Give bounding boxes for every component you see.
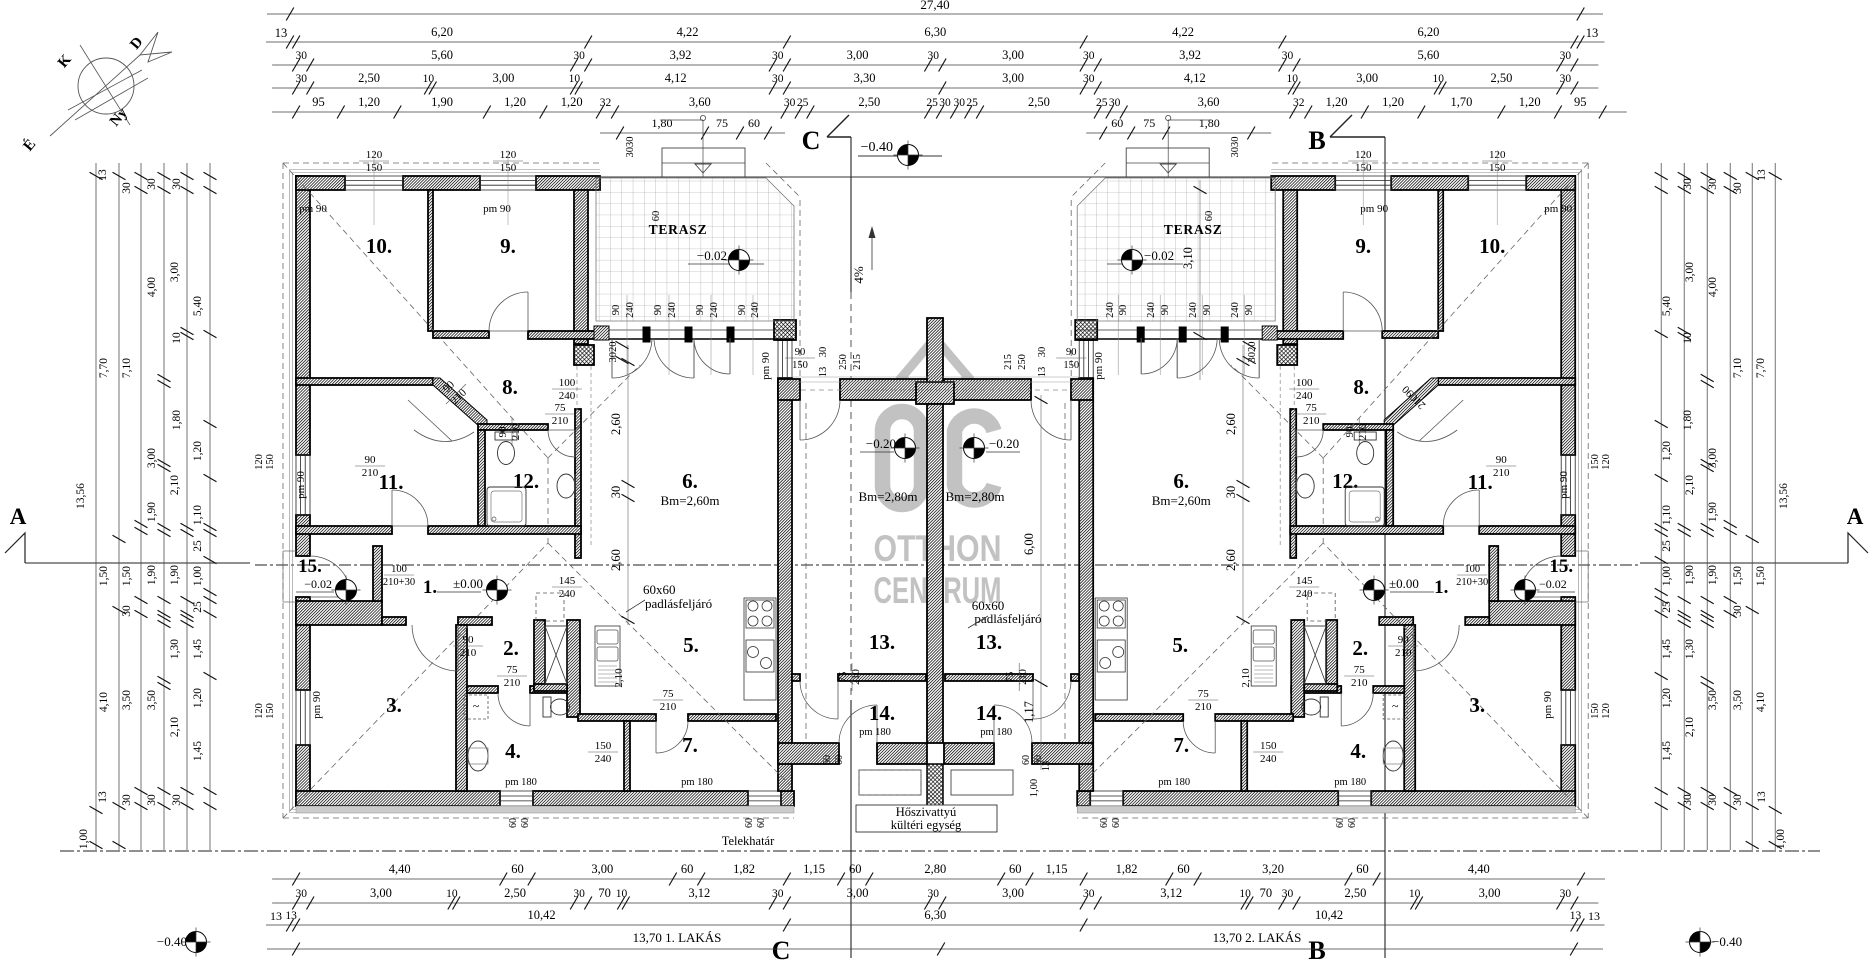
svg-text:Bm=2,60m: Bm=2,60m [1152,493,1211,508]
svg-text:240: 240 [1260,753,1277,765]
svg-text:75: 75 [507,664,519,676]
svg-text:pm 90: pm 90 [483,203,511,215]
svg-text:2,50: 2,50 [1490,71,1512,85]
svg-text:60: 60 [508,818,519,828]
svg-text:70: 70 [598,886,611,900]
svg-text:~: ~ [473,699,480,713]
svg-text:150: 150 [792,360,808,371]
svg-text:240: 240 [750,302,761,318]
svg-text:60: 60 [1347,818,1358,828]
svg-text:1,45: 1,45 [1661,741,1673,761]
svg-text:2.: 2. [1352,636,1368,660]
svg-text:30: 30 [121,182,133,194]
svg-text:1,45: 1,45 [192,741,204,761]
svg-text:14.: 14. [869,701,895,725]
svg-text:1,45: 1,45 [192,639,204,659]
svg-text:25: 25 [192,540,204,552]
svg-text:90: 90 [795,347,806,358]
svg-text:1,90: 1,90 [431,95,453,109]
svg-text:240: 240 [1105,302,1116,318]
svg-text:4,22: 4,22 [677,25,699,39]
svg-text:6.: 6. [682,469,698,493]
svg-text:1,00: 1,00 [192,566,204,586]
svg-text:30: 30 [171,178,183,190]
svg-text:4,40: 4,40 [1468,862,1490,876]
svg-text:30: 30 [1282,50,1294,62]
svg-text:pm 180: pm 180 [681,777,713,788]
svg-text:10: 10 [1432,73,1444,85]
svg-text:3,00: 3,00 [1002,886,1024,900]
svg-text:1,90: 1,90 [1684,565,1696,585]
svg-text:4,12: 4,12 [1184,71,1206,85]
svg-text:−0.20: −0.20 [866,436,896,451]
svg-text:1,20: 1,20 [561,95,583,109]
svg-text:3,00: 3,00 [370,886,392,900]
svg-text:3,50: 3,50 [1732,690,1744,710]
svg-text:1,82: 1,82 [733,862,755,876]
svg-text:25: 25 [1661,540,1673,552]
svg-text:TERASZ: TERASZ [649,222,708,237]
svg-text:C: C [802,126,821,155]
svg-text:Bm=2,80m: Bm=2,80m [946,489,1005,504]
svg-text:pm 180: pm 180 [859,727,891,738]
svg-text:1,80: 1,80 [652,116,673,130]
svg-text:30: 30 [772,888,784,900]
svg-text:13: 13 [285,910,297,922]
svg-text:1,45: 1,45 [1661,639,1673,659]
svg-text:pm 90: pm 90 [1544,203,1572,215]
svg-text:1,90: 1,90 [146,565,158,585]
svg-text:±0.00: ±0.00 [1389,576,1419,591]
svg-text:−0.02: −0.02 [304,577,332,591]
svg-text:210+30: 210+30 [1456,577,1488,588]
svg-text:1,20: 1,20 [1519,95,1541,109]
svg-text:11.: 11. [1468,470,1493,494]
svg-text:1,80: 1,80 [171,410,183,430]
svg-text:30: 30 [146,794,158,806]
svg-text:90: 90 [1496,454,1508,466]
svg-text:10,42: 10,42 [527,908,555,922]
svg-text:1,20: 1,20 [358,95,380,109]
svg-text:1.: 1. [1434,577,1448,598]
svg-text:75: 75 [1005,672,1016,683]
svg-text:10: 10 [1409,888,1421,900]
svg-text:3,00: 3,00 [1356,71,1378,85]
svg-text:120: 120 [1601,454,1612,470]
svg-text:2,10: 2,10 [169,717,181,737]
svg-text:3.: 3. [386,693,402,717]
svg-text:4%: 4% [851,266,866,284]
svg-text:60: 60 [1356,862,1369,876]
svg-text:210: 210 [1195,701,1212,713]
svg-text:25: 25 [1661,601,1673,613]
svg-text:215: 215 [852,354,863,370]
svg-text:60: 60 [1099,818,1110,828]
svg-text:4,12: 4,12 [665,71,687,85]
svg-text:1,20: 1,20 [192,441,204,461]
svg-text:4,00: 4,00 [1707,277,1719,297]
svg-text:2,10: 2,10 [1684,475,1696,495]
svg-text:6.: 6. [1173,469,1189,493]
svg-text:1,00: 1,00 [1661,566,1673,586]
svg-text:3,00: 3,00 [169,262,181,282]
svg-text:30: 30 [1707,794,1719,806]
svg-text:Bm=2,80m: Bm=2,80m [859,489,918,504]
svg-text:210: 210 [851,669,862,685]
svg-text:4,22: 4,22 [1172,25,1194,39]
svg-text:1,17: 1,17 [1022,701,1036,723]
svg-text:240: 240 [1188,302,1199,318]
svg-text:13: 13 [1586,26,1599,40]
svg-text:1,90: 1,90 [146,502,158,522]
svg-text:210: 210 [660,701,677,713]
svg-text:6,20: 6,20 [1417,25,1439,39]
svg-text:30: 30 [818,347,829,358]
svg-text:13: 13 [97,169,109,181]
svg-text:25: 25 [966,97,978,109]
svg-text:pm 180: pm 180 [980,727,1012,738]
svg-text:1,20: 1,20 [504,95,526,109]
svg-text:4,40: 4,40 [389,862,411,876]
svg-text:7,10: 7,10 [1732,358,1744,378]
svg-text:2,10: 2,10 [1240,668,1252,688]
svg-text:pm 90: pm 90 [311,691,323,719]
svg-text:145: 145 [559,575,576,587]
svg-text:75: 75 [1306,402,1318,414]
svg-text:13: 13 [1570,910,1582,922]
svg-text:30: 30 [928,50,940,62]
svg-text:9.: 9. [1355,234,1371,258]
svg-text:13.: 13. [976,630,1002,654]
svg-text:30: 30 [772,73,784,85]
svg-text:30: 30 [1682,178,1694,190]
svg-text:100: 100 [1296,377,1313,389]
svg-text:~: ~ [1392,699,1399,713]
svg-text:5,40: 5,40 [1661,296,1673,316]
svg-text:150: 150 [1590,454,1601,470]
svg-text:pm 90: pm 90 [760,352,772,380]
svg-text:60: 60 [1009,862,1022,876]
svg-text:60: 60 [1111,818,1122,828]
svg-text:30: 30 [928,888,940,900]
svg-text:3,00: 3,00 [1002,48,1024,62]
svg-text:25: 25 [797,97,809,109]
svg-text:13: 13 [275,26,288,40]
svg-text:3,00: 3,00 [1479,886,1501,900]
svg-text:250: 250 [1017,354,1028,370]
svg-text:90: 90 [695,305,706,316]
svg-text:210: 210 [1018,669,1029,685]
svg-text:60: 60 [651,211,662,222]
svg-text:2,60: 2,60 [609,549,623,571]
svg-text:10: 10 [446,888,458,900]
svg-text:60: 60 [834,755,845,765]
svg-text:1,50: 1,50 [1732,566,1744,586]
svg-text:13,56: 13,56 [1778,483,1790,509]
svg-text:1,90: 1,90 [1707,502,1719,522]
svg-text:1.: 1. [423,577,437,598]
svg-text:7,70: 7,70 [1755,358,1767,378]
svg-text:100: 100 [559,377,576,389]
svg-text:210+30: 210+30 [383,577,415,588]
svg-text:25: 25 [1096,97,1108,109]
svg-text:30: 30 [1083,73,1095,85]
svg-text:30: 30 [1682,794,1694,806]
svg-text:30: 30 [573,50,585,62]
svg-text:3,00: 3,00 [591,862,613,876]
svg-text:30: 30 [1083,50,1095,62]
svg-text:30: 30 [1732,794,1744,806]
svg-text:Telekhatár: Telekhatár [722,834,775,848]
svg-text:150: 150 [1590,703,1601,719]
svg-text:210: 210 [552,415,569,427]
svg-text:3,00: 3,00 [1684,262,1696,282]
svg-text:1,90: 1,90 [1707,565,1719,585]
svg-text:1,20: 1,20 [1661,441,1673,461]
svg-text:−0.02: −0.02 [697,248,727,263]
svg-text:1,00: 1,00 [78,829,90,849]
svg-text:10: 10 [171,332,183,344]
svg-text:pm 90: pm 90 [295,471,307,499]
svg-text:60x60: 60x60 [643,582,676,597]
svg-text:3,30: 3,30 [854,71,876,85]
svg-text:kültéri egység: kültéri egység [891,818,962,832]
svg-text:1,30: 1,30 [1684,639,1696,659]
svg-text:13: 13 [1041,761,1052,772]
svg-text:150: 150 [1063,360,1079,371]
svg-text:pm 90: pm 90 [1360,203,1388,215]
svg-text:3030: 3030 [1230,137,1241,158]
svg-text:1,80: 1,80 [1199,116,1220,130]
svg-text:10.: 10. [1479,234,1505,258]
svg-text:3,92: 3,92 [670,48,692,62]
svg-text:1,50: 1,50 [121,566,133,586]
svg-text:30: 30 [573,888,585,900]
svg-text:60: 60 [744,818,755,828]
svg-text:5,40: 5,40 [192,296,204,316]
svg-text:120: 120 [254,454,265,470]
svg-text:A: A [10,504,27,529]
svg-text:B: B [1308,936,1325,960]
svg-text:7,10: 7,10 [121,358,133,378]
svg-text:3,00: 3,00 [1002,71,1024,85]
svg-text:25: 25 [926,97,938,109]
svg-text:3,50: 3,50 [1707,690,1719,710]
svg-text:120: 120 [254,703,265,719]
svg-text:11.: 11. [378,470,403,494]
svg-text:240: 240 [1146,302,1157,318]
svg-text:70: 70 [1260,886,1273,900]
svg-text:150: 150 [265,703,276,719]
svg-text:pm 90: pm 90 [1558,471,1570,499]
svg-text:90: 90 [1066,347,1077,358]
svg-text:−0.20: −0.20 [989,436,1019,451]
svg-text:90: 90 [737,305,748,316]
svg-text:13: 13 [270,909,282,923]
svg-text:1,82: 1,82 [1116,862,1138,876]
svg-text:2,60: 2,60 [1224,413,1238,435]
svg-text:6,30: 6,30 [924,25,946,39]
svg-text:14.: 14. [976,701,1002,725]
svg-text:A: A [1847,504,1864,529]
svg-text:2,60: 2,60 [1224,549,1238,571]
svg-text:4,00: 4,00 [146,277,158,297]
svg-text:10: 10 [1239,888,1251,900]
svg-text:90: 90 [1160,305,1171,316]
svg-text:3,00: 3,00 [146,448,158,468]
svg-text:3.: 3. [1469,693,1485,717]
svg-text:30: 30 [1109,97,1121,109]
svg-text:4.: 4. [505,739,521,763]
svg-text:240: 240 [559,588,576,600]
svg-text:3,92: 3,92 [1179,48,1201,62]
svg-text:1,10: 1,10 [1661,505,1673,525]
svg-text:30: 30 [295,73,307,85]
svg-text:4.: 4. [1350,739,1366,763]
svg-text:13: 13 [97,791,109,803]
svg-text:5.: 5. [683,633,699,657]
svg-text:30: 30 [121,794,133,806]
svg-text:60: 60 [1177,862,1190,876]
svg-text:Bm=2,60m: Bm=2,60m [661,493,720,508]
svg-text:B: B [1308,126,1325,155]
svg-text:30: 30 [1083,888,1095,900]
svg-text:60: 60 [511,862,524,876]
svg-text:100: 100 [391,564,407,575]
svg-text:13: 13 [818,367,829,378]
svg-text:3,00: 3,00 [1707,448,1719,468]
svg-text:75: 75 [1143,116,1155,130]
svg-text:240: 240 [625,302,636,318]
svg-text:60: 60 [1021,755,1032,765]
svg-text:250: 250 [838,354,849,370]
svg-text:1,20: 1,20 [1326,95,1348,109]
svg-text:13: 13 [1588,909,1600,923]
svg-text:150: 150 [265,454,276,470]
svg-text:±0.00: ±0.00 [453,576,483,591]
svg-text:pm 180: pm 180 [1334,777,1366,788]
svg-text:210: 210 [504,677,521,689]
svg-text:5,60: 5,60 [431,48,453,62]
svg-text:30: 30 [295,50,307,62]
svg-text:1,80: 1,80 [1682,410,1694,430]
svg-text:90: 90 [365,454,377,466]
svg-text:1,50: 1,50 [98,566,110,586]
svg-text:60: 60 [520,818,531,828]
svg-text:60: 60 [1111,116,1123,130]
svg-text:10: 10 [1286,73,1298,85]
svg-text:2,10: 2,10 [1684,717,1696,737]
svg-text:30: 30 [1560,888,1572,900]
svg-text:30: 30 [1037,347,1048,358]
svg-text:9.: 9. [500,234,516,258]
svg-text:210: 210 [362,467,379,479]
svg-text:30: 30 [784,97,796,109]
svg-text:75: 75 [716,116,728,130]
svg-text:6,30: 6,30 [924,908,946,922]
svg-text:−0.02: −0.02 [1144,248,1174,263]
svg-text:90: 90 [463,634,475,646]
svg-text:30: 30 [772,50,784,62]
svg-text:240: 240 [559,390,576,402]
svg-text:32: 32 [1293,97,1305,109]
svg-text:27,40: 27,40 [920,0,949,12]
svg-text:25: 25 [192,601,204,613]
svg-text:3,10: 3,10 [1181,247,1195,269]
svg-text:75: 75 [838,672,849,683]
svg-text:30: 30 [1560,73,1572,85]
svg-text:240: 240 [667,302,678,318]
svg-text:8.: 8. [502,375,518,399]
svg-text:210: 210 [1303,415,1320,427]
svg-text:10: 10 [616,888,628,900]
svg-text:145: 145 [1296,575,1313,587]
svg-text:240: 240 [1296,588,1313,600]
svg-text:2,50: 2,50 [504,886,526,900]
svg-text:30: 30 [121,605,133,617]
svg-text:7.: 7. [682,733,698,757]
svg-text:3,20: 3,20 [1262,862,1284,876]
svg-text:5.: 5. [1172,633,1188,657]
svg-text:10: 10 [569,73,581,85]
svg-text:150: 150 [1260,740,1277,752]
svg-text:Hőszivattyú: Hőszivattyú [896,805,957,819]
svg-text:3,50: 3,50 [146,690,158,710]
svg-text:3,12: 3,12 [688,886,710,900]
svg-text:1,50: 1,50 [1755,566,1767,586]
svg-text:8.: 8. [1353,375,1369,399]
svg-text:75: 75 [663,688,675,700]
svg-text:15.: 15. [1549,556,1573,577]
svg-text:1,20: 1,20 [1382,95,1404,109]
svg-text:90: 90 [653,305,664,316]
svg-text:−0.40: −0.40 [1712,934,1742,949]
svg-text:60: 60 [681,862,694,876]
svg-text:C: C [772,936,791,960]
svg-text:15.: 15. [298,556,322,577]
svg-text:32: 32 [600,97,612,109]
svg-text:95: 95 [1574,95,1587,109]
svg-text:3030: 3030 [625,137,636,158]
svg-text:1,20: 1,20 [192,688,204,708]
svg-text:13,56: 13,56 [75,483,87,509]
svg-text:pm 90: pm 90 [299,203,327,215]
svg-text:7,70: 7,70 [98,358,110,378]
svg-text:6,00: 6,00 [1022,533,1036,555]
svg-text:10.: 10. [366,234,392,258]
svg-text:30: 30 [1224,486,1238,499]
svg-text:13.: 13. [869,630,895,654]
svg-text:2,50: 2,50 [358,71,380,85]
svg-text:−0.40: −0.40 [861,140,893,155]
svg-text:2,50: 2,50 [858,95,880,109]
svg-text:90: 90 [1398,634,1410,646]
svg-text:210: 210 [460,647,477,659]
svg-text:240: 240 [709,302,720,318]
svg-text:1,00: 1,00 [1029,779,1040,797]
svg-text:7.: 7. [1173,733,1189,757]
svg-text:13,70 2. LAKÁS: 13,70 2. LAKÁS [1213,930,1302,945]
svg-text:2,50: 2,50 [1028,95,1050,109]
svg-text:2,80: 2,80 [924,862,946,876]
svg-text:2,60: 2,60 [609,413,623,435]
svg-text:30: 30 [939,97,951,109]
svg-text:60: 60 [849,862,862,876]
svg-text:210: 210 [1493,467,1510,479]
svg-text:120: 120 [1601,703,1612,719]
svg-text:1,15: 1,15 [1046,862,1068,876]
svg-text:padlásfeljáró: padlásfeljáró [645,596,712,611]
